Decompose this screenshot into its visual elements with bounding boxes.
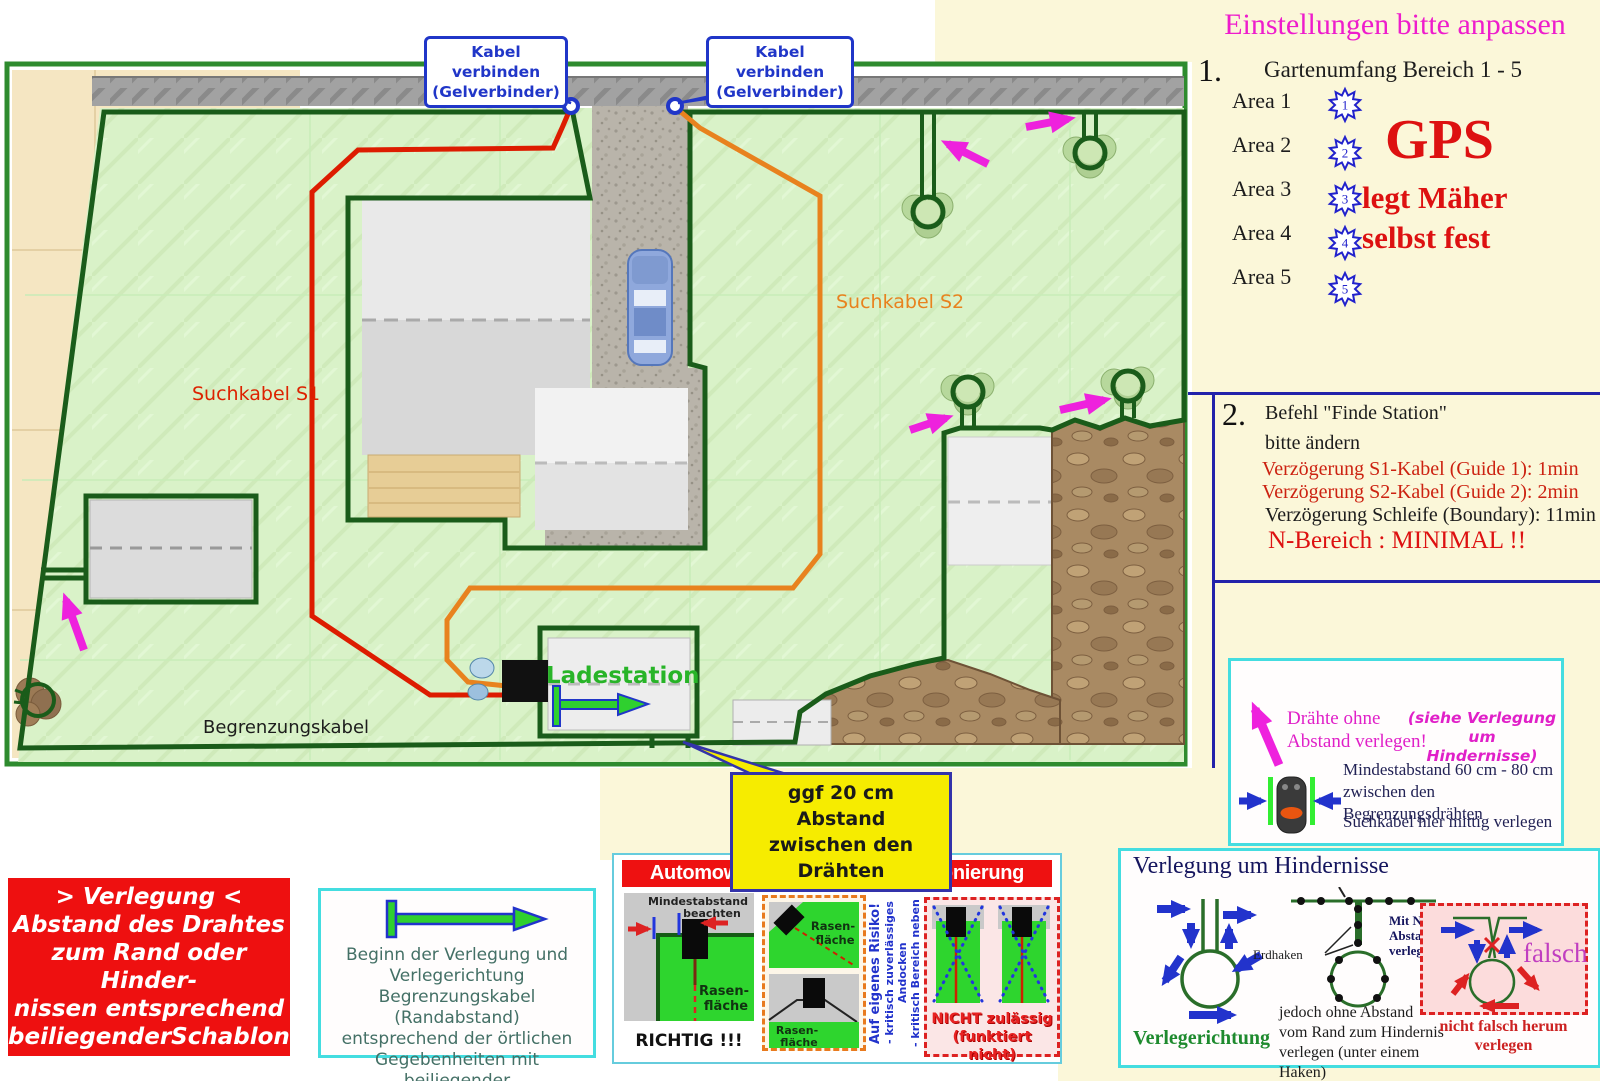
accessory-blob [470,658,494,678]
settings-title: Einstellungen bitte anpassen [1195,8,1595,42]
area-row: Area 1 1 [1228,86,1398,130]
step2-subtitle: bitte ändern [1265,432,1360,455]
area-star-icon: 3 [1326,180,1364,218]
area-label: Area 3 [1232,176,1291,202]
begrenzungskabel-label: Begrenzungskabel [203,717,369,738]
ladestation-label: Ladestation [546,663,700,689]
no-gap-line: Abstand verlegen! [1287,730,1427,753]
beginn-line: Gegebenheiten mit beiliegender [327,1050,587,1081]
car [628,250,672,365]
area-star-icon: 1 [1326,86,1364,124]
panel-correct: Mindestabstand beachten Rasen- fläche RI… [624,893,754,1051]
area-star-icon: 2 [1326,134,1364,172]
separator-line [1188,392,1600,395]
beginn-line: Begrenzungskabel (Randabstand) [327,987,587,1029]
area-label: Area 1 [1232,88,1291,114]
mower-between-wires-icon [1237,769,1343,839]
wrong-way-note: nicht falsch herum verlegen [1421,1017,1586,1055]
verlegung-line: Abstand des Drahtes [8,911,290,939]
gps-note-line2: selbst fest [1362,218,1490,258]
verlegung-note-box: > Verlegung < Abstand des Drahtes zum Ra… [8,878,290,1056]
svg-text:Rasen-: Rasen- [811,919,855,933]
step1-heading: Gartenumfang Bereich 1 - 5 [1264,57,1522,83]
svg-text:3: 3 [1342,192,1349,207]
obstacles-title: Verlegung um Hindernisse [1133,853,1389,880]
svg-text:beachten: beachten [683,907,741,920]
no-gap-note: Drähte ohne Abstand verlegen! [1287,707,1427,753]
callout-line: Kabel verbinden [431,42,561,82]
panel-forbidden-diagram [928,901,1054,1005]
laying-direction-arrow-icon [379,899,551,941]
sidewalk [92,76,1184,106]
delay-loop-setting: Verzögerung Schleife (Boundary): 11min [1265,504,1596,527]
svg-text:4: 4 [1342,236,1349,251]
area-label: Area 4 [1232,220,1291,246]
beginn-line: Verlegerichtung [327,966,587,987]
rock-area-column [1052,418,1184,744]
panel-risk: Rasen- fläche Rasen- fläche [762,895,866,1051]
magenta-arrow-icon [1239,695,1291,773]
no-gap-line: Drähte ohne [1287,707,1427,730]
gps-note-line1: legt Mäher [1362,178,1507,218]
svg-text:5: 5 [1342,282,1349,297]
deck [368,455,520,517]
verlegung-line: > Verlegung < [8,883,290,911]
yellow-note-line: zwischen den Drähten [741,832,941,884]
cable-connector-icon [668,99,682,113]
verlegerichtung-label: Verlegerichtung [1133,1027,1270,1050]
area-label: Area 2 [1232,132,1291,158]
wrong-note-line: verlegen [1421,1036,1586,1055]
charging-station [502,660,548,702]
separator-line [1212,580,1600,583]
callout-kabel-verbinden-left: Kabel verbinden (Gelverbinder) [424,36,568,108]
verlegung-line: beiliegenderSchablone [8,1023,290,1051]
step2-number: 2. [1222,396,1246,433]
see-obstacles-ref: (siehe Verlegung um Hindernisse) [1407,709,1557,766]
garden-map: Suchkabel S1 Suchkabel S2 Begrenzungskab… [0,60,1192,770]
svg-text:Rasen-: Rasen- [699,984,749,999]
yellow-distance-note: ggf 20 cm Abstand zwischen den Drähten [730,772,952,892]
suchkabel-s1-label: Suchkabel S1 [192,383,320,405]
beginn-box: Beginn der Verlegung und Verlegerichtung… [318,888,596,1058]
panel-risk-diagram: Rasen- fläche Rasen- fläche [767,900,861,1050]
yellow-note-line: ggf 20 cm Abstand [741,780,941,832]
area-star-icon: 5 [1326,270,1364,308]
verdict-nicht-zulaessig: NICHT zulässig (funktiert nicht) [927,1010,1057,1064]
svg-text:2: 2 [1342,146,1349,161]
falsch-label: falsch [1523,938,1587,969]
beginn-line: Beginn der Verlegung und [327,945,587,966]
area-star-icon: 4 [1326,224,1364,262]
area-label: Area 5 [1232,264,1291,290]
forbidden-line: NICHT zulässig [927,1010,1057,1028]
n-bereich-setting: N-Bereich : MINIMAL !! [1268,527,1526,555]
delay-s2-setting: Verzögerung S2-Kabel (Guide 2): 2min [1262,481,1579,504]
callout-line: (Gelverbinder) [713,82,847,102]
area-row: Area 5 5 [1228,262,1398,306]
risk-line: - kritisch zuverlässiges Andocken [883,893,909,1053]
forbidden-line: (funktiert nicht) [927,1028,1057,1064]
svg-text:fläche: fläche [780,1036,817,1049]
svg-text:1: 1 [1342,98,1349,113]
callout-kabel-verbinden-right: Kabel verbinden (Gelverbinder) [706,36,854,108]
step2-title: Befehl "Finde Station" [1265,402,1447,425]
guide-center-note: Suchkabel hier mittig verlegen [1343,811,1552,833]
wire-note-box: Drähte ohne Abstand verlegen! (siehe Ver… [1228,658,1564,846]
beginn-line: entsprechend der örtlichen [327,1029,587,1050]
step1-number: 1. [1198,52,1222,89]
accessory-blob [468,684,488,700]
beginn-text: Beginn der Verlegung und Verlegerichtung… [327,945,587,1081]
page: Suchkabel S1 Suchkabel S2 Begrenzungskab… [0,0,1600,1081]
callout-line: (Gelverbinder) [431,82,561,102]
delay-s1-setting: Verzögerung S1-Kabel (Guide 1): 1min [1262,458,1579,481]
wrong-way-box: falsch [1420,903,1588,1015]
risk-line: Auf eigenes Risiko! [868,893,883,1053]
svg-text:fläche: fläche [704,999,748,1014]
verdict-richtig: RICHTIG !!! [624,1031,754,1051]
verlegung-line: zum Rand oder Hinder- [8,939,290,995]
gps-heading: GPS [1385,108,1494,172]
suchkabel-s2-label: Suchkabel S2 [836,291,964,313]
svg-text:fläche: fläche [815,933,854,947]
verlegung-line: nissen entsprechend [8,995,290,1023]
erdhaken-label: Erdhaken [1253,947,1303,963]
area-row: Area 2 2 [1228,130,1398,174]
panel-forbidden: NICHT zulässig (funktiert nicht) [924,897,1060,1057]
obstacles-box: Verlegung um Hindernisse Verlegerichtung [1118,848,1600,1068]
panel-correct-diagram: Mindestabstand beachten Rasen- fläche [624,893,754,1021]
callout-line: Kabel verbinden [713,42,847,82]
wrong-note-line: nicht falsch herum [1421,1017,1586,1036]
ref-line: (siehe Verlegung um [1407,709,1557,747]
dist-line: Mindestabstand 60 cm - 80 cm [1343,759,1561,781]
